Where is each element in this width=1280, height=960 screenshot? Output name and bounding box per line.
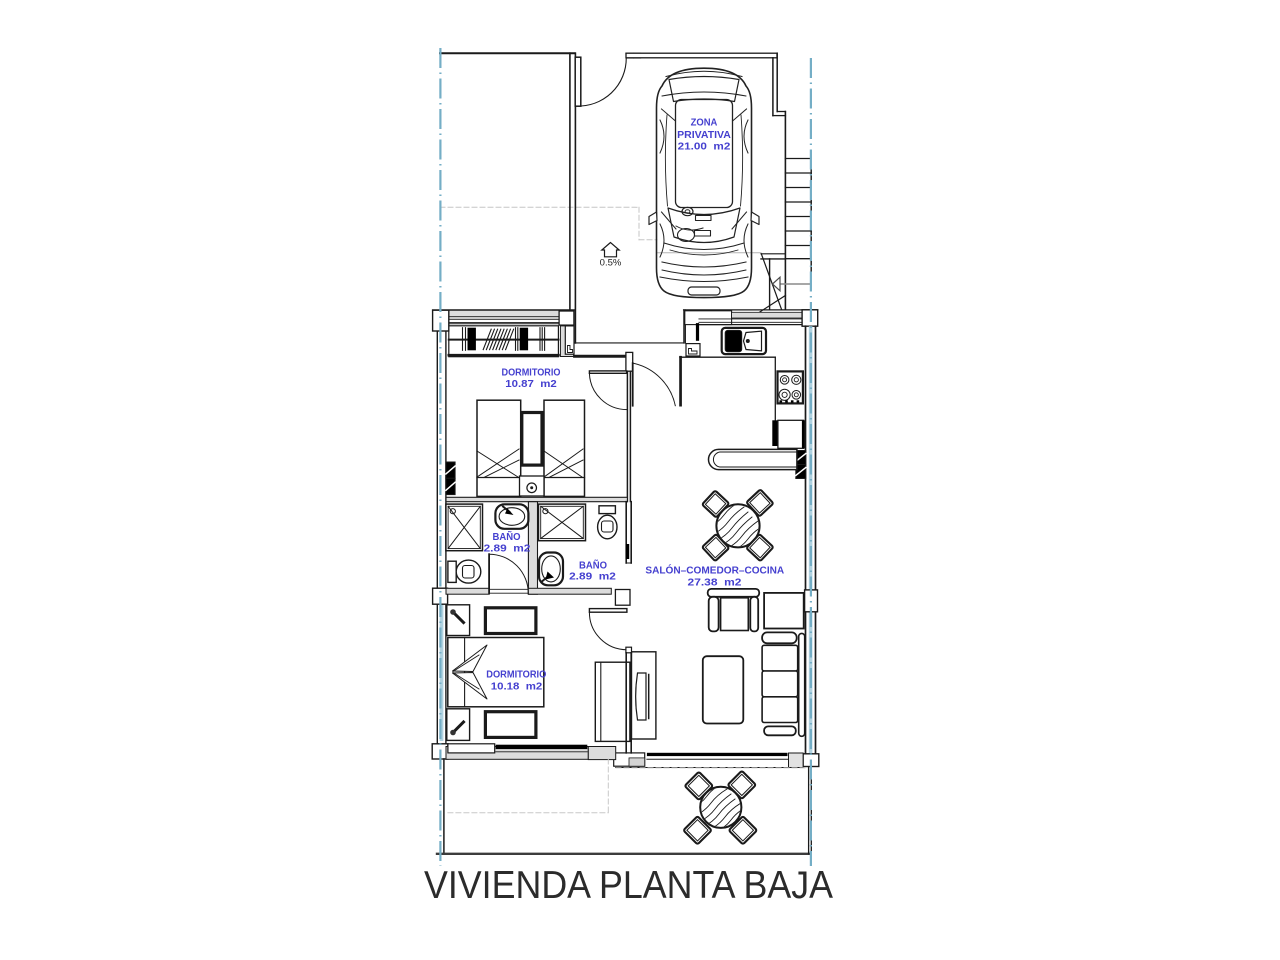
svg-text:0.5%: 0.5% xyxy=(600,258,622,269)
svg-text:DORMITORIO: DORMITORIO xyxy=(502,368,561,379)
svg-text:SALÓN–COMEDOR–COCINA: SALÓN–COMEDOR–COCINA xyxy=(645,564,784,577)
svg-text:21.00 m2: 21.00 m2 xyxy=(678,141,731,152)
svg-text:10.87 m2: 10.87 m2 xyxy=(505,379,557,390)
svg-text:2.89 m2: 2.89 m2 xyxy=(569,572,616,583)
svg-text:2.89 m2: 2.89 m2 xyxy=(484,544,531,555)
svg-text:PRIVATIVA: PRIVATIVA xyxy=(677,130,731,141)
svg-text:10.18 m2: 10.18 m2 xyxy=(491,682,543,693)
svg-text:BAÑO: BAÑO xyxy=(579,559,607,572)
svg-text:BAÑO: BAÑO xyxy=(493,530,521,543)
svg-text:DORMITORIO: DORMITORIO xyxy=(486,670,546,681)
svg-text:ZONA: ZONA xyxy=(691,118,718,129)
svg-text:VIVIENDA PLANTA BAJA: VIVIENDA PLANTA BAJA xyxy=(424,864,833,907)
svg-text:27.38 m2: 27.38 m2 xyxy=(688,578,742,589)
